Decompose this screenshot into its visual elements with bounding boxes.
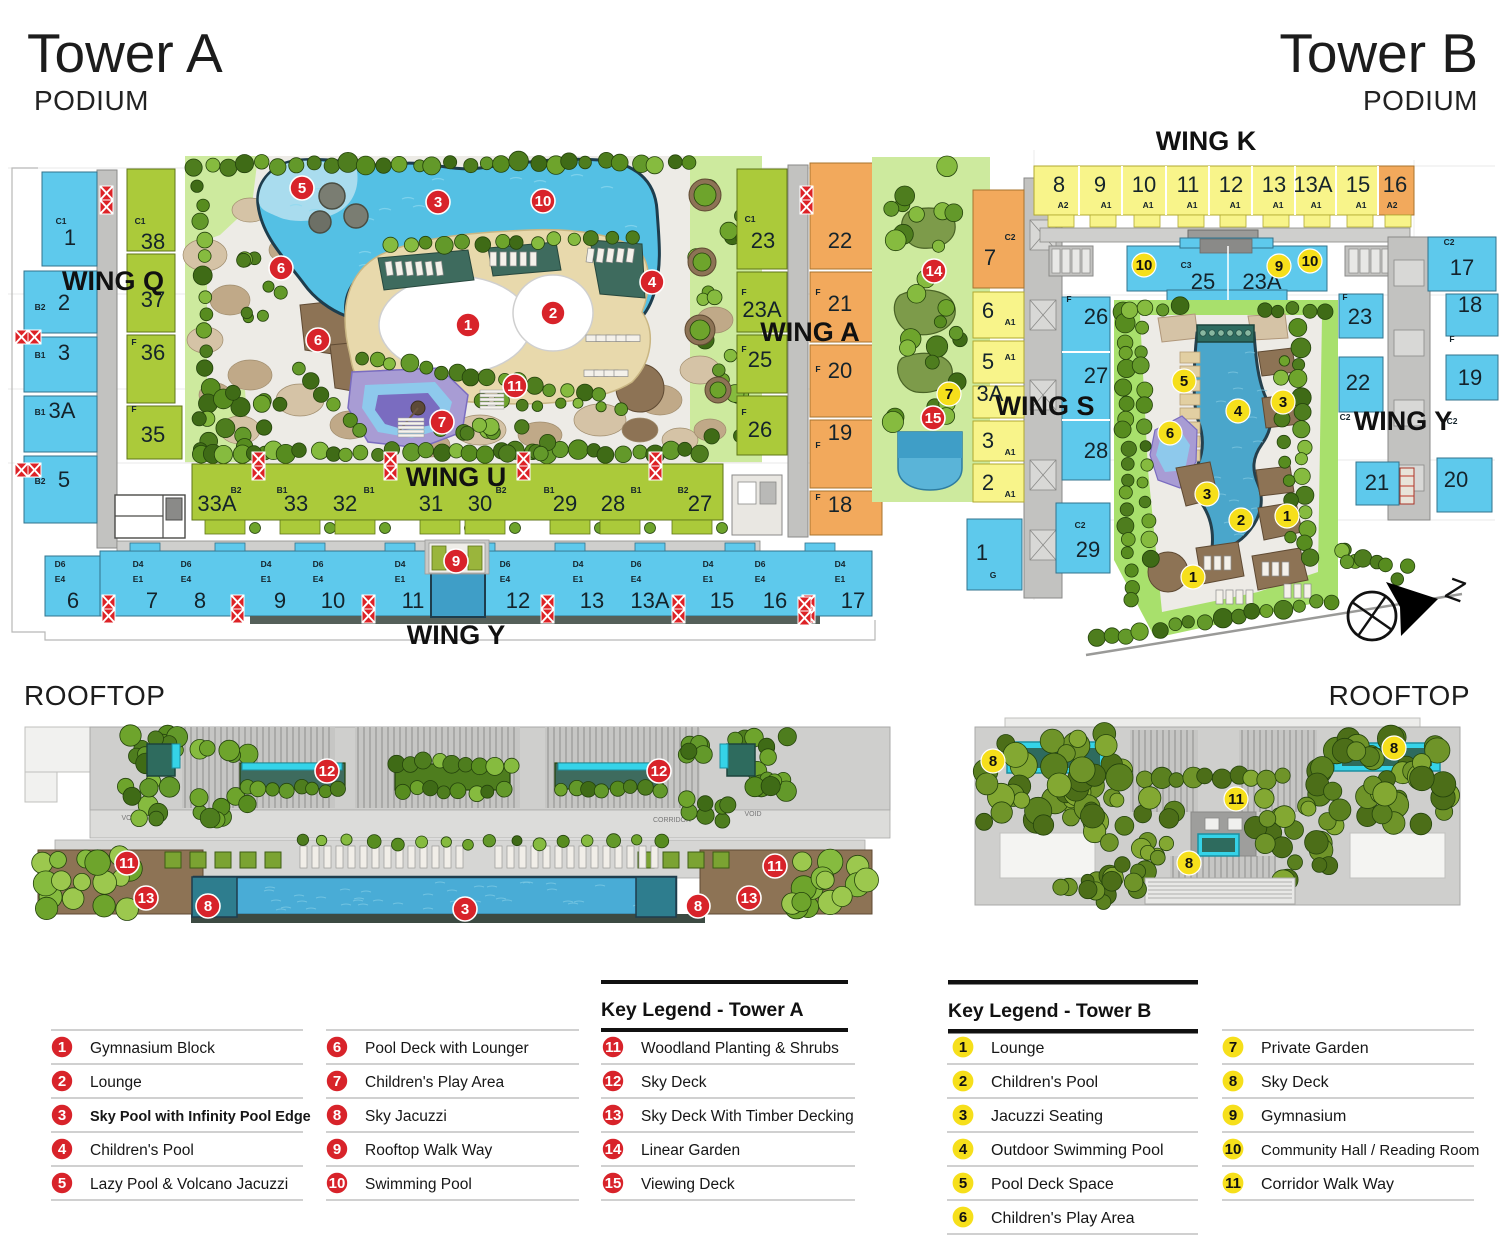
svg-text:WING Y: WING Y <box>407 620 506 650</box>
svg-text:8: 8 <box>1390 740 1398 757</box>
svg-text:D6: D6 <box>313 559 324 569</box>
svg-text:12: 12 <box>651 763 668 780</box>
svg-text:G: G <box>990 570 997 580</box>
svg-text:8: 8 <box>333 1107 341 1124</box>
svg-text:7: 7 <box>333 1073 341 1090</box>
svg-text:C1: C1 <box>135 216 146 226</box>
svg-text:E1: E1 <box>573 574 584 584</box>
svg-text:19: 19 <box>828 420 852 445</box>
svg-text:13: 13 <box>741 890 758 907</box>
svg-text:8: 8 <box>989 753 997 770</box>
svg-text:A1: A1 <box>1005 317 1016 327</box>
svg-text:38: 38 <box>141 229 165 254</box>
svg-text:3: 3 <box>461 901 469 918</box>
svg-text:28: 28 <box>601 491 625 516</box>
svg-text:11: 11 <box>402 588 425 613</box>
svg-text:11: 11 <box>605 1039 621 1056</box>
svg-text:Children's Play Area: Children's Play Area <box>991 1210 1135 1227</box>
svg-text:7: 7 <box>1229 1039 1237 1056</box>
svg-text:22: 22 <box>828 228 852 253</box>
svg-text:8: 8 <box>204 898 212 915</box>
svg-text:Tower B: Tower B <box>1279 22 1478 84</box>
svg-text:2: 2 <box>959 1073 967 1090</box>
svg-text:F: F <box>815 440 820 450</box>
svg-text:26: 26 <box>748 417 772 442</box>
svg-text:A1: A1 <box>1230 200 1241 210</box>
svg-text:Children's Pool: Children's Pool <box>90 1142 194 1159</box>
svg-text:F: F <box>1066 294 1071 304</box>
svg-text:F: F <box>1342 292 1347 302</box>
svg-text:Children's Play Area: Children's Play Area <box>365 1074 504 1091</box>
svg-text:9: 9 <box>452 553 460 570</box>
svg-text:6: 6 <box>277 260 285 277</box>
svg-text:B1: B1 <box>35 407 46 417</box>
svg-text:F: F <box>741 407 746 417</box>
svg-text:6: 6 <box>959 1209 967 1226</box>
svg-text:A1: A1 <box>1005 447 1016 457</box>
svg-text:8: 8 <box>1053 172 1065 197</box>
svg-text:10: 10 <box>1136 257 1153 274</box>
svg-text:Pool Deck with Lounger: Pool Deck with Lounger <box>365 1040 529 1057</box>
svg-text:Key Legend - Tower A: Key Legend - Tower A <box>601 999 804 1021</box>
svg-text:D4: D4 <box>573 559 584 569</box>
svg-text:11: 11 <box>1228 791 1244 808</box>
svg-text:1: 1 <box>58 1039 66 1056</box>
svg-text:21: 21 <box>828 291 852 316</box>
svg-text:28: 28 <box>1084 438 1108 463</box>
svg-text:Outdoor Swimming Pool: Outdoor Swimming Pool <box>991 1142 1164 1159</box>
svg-text:6: 6 <box>1166 425 1174 442</box>
svg-text:F: F <box>815 364 820 374</box>
svg-text:4: 4 <box>58 1141 67 1158</box>
svg-text:B1: B1 <box>544 485 555 495</box>
svg-text:C3: C3 <box>1181 260 1192 270</box>
svg-text:Lazy Pool & Volcano Jacuzzi: Lazy Pool & Volcano Jacuzzi <box>90 1176 288 1193</box>
svg-text:E4: E4 <box>55 574 66 584</box>
svg-text:27: 27 <box>688 491 712 516</box>
svg-text:9: 9 <box>333 1141 341 1158</box>
svg-text:26: 26 <box>1084 304 1108 329</box>
svg-text:5: 5 <box>1180 373 1188 390</box>
svg-text:A1: A1 <box>1005 352 1016 362</box>
svg-text:Corridor Walk Way: Corridor Walk Way <box>1261 1176 1394 1193</box>
svg-text:Sky Deck: Sky Deck <box>641 1074 707 1091</box>
svg-text:35: 35 <box>141 422 165 447</box>
svg-text:F: F <box>741 344 746 354</box>
svg-text:Pool Deck Space: Pool Deck Space <box>991 1176 1114 1193</box>
svg-text:1: 1 <box>64 225 76 250</box>
svg-text:15: 15 <box>605 1175 622 1192</box>
svg-text:23: 23 <box>751 228 775 253</box>
svg-text:E4: E4 <box>313 574 324 584</box>
svg-text:2: 2 <box>58 1073 66 1090</box>
svg-text:7: 7 <box>984 245 996 270</box>
svg-text:ROOFTOP: ROOFTOP <box>24 680 165 711</box>
svg-text:2: 2 <box>982 470 994 495</box>
svg-text:7: 7 <box>945 386 953 403</box>
svg-text:10: 10 <box>321 588 345 613</box>
svg-text:Viewing Deck: Viewing Deck <box>641 1176 735 1193</box>
svg-text:13A: 13A <box>630 588 669 613</box>
svg-text:WING A: WING A <box>760 317 859 347</box>
svg-text:A1: A1 <box>1273 200 1284 210</box>
svg-text:16: 16 <box>763 588 787 613</box>
svg-text:D6: D6 <box>181 559 192 569</box>
svg-text:3A: 3A <box>49 398 76 423</box>
svg-text:Key Legend - Tower B: Key Legend - Tower B <box>948 1000 1151 1022</box>
svg-text:10: 10 <box>535 193 552 210</box>
svg-text:3: 3 <box>434 194 442 211</box>
svg-text:Children's Pool: Children's Pool <box>991 1074 1098 1091</box>
svg-text:11: 11 <box>507 378 523 395</box>
svg-text:D4: D4 <box>133 559 144 569</box>
svg-text:6: 6 <box>314 332 322 349</box>
svg-text:F: F <box>741 287 746 297</box>
svg-text:Private Garden: Private Garden <box>1261 1040 1369 1057</box>
svg-text:B1: B1 <box>631 485 642 495</box>
svg-text:7: 7 <box>438 414 446 431</box>
svg-text:E4: E4 <box>631 574 642 584</box>
svg-text:Linear Garden: Linear Garden <box>641 1142 740 1159</box>
svg-text:4: 4 <box>959 1141 968 1158</box>
svg-text:5: 5 <box>58 467 70 492</box>
svg-text:10: 10 <box>1132 172 1156 197</box>
svg-text:A1: A1 <box>1356 200 1367 210</box>
svg-text:Lounge: Lounge <box>991 1040 1044 1057</box>
svg-text:D6: D6 <box>755 559 766 569</box>
svg-text:B1: B1 <box>35 350 46 360</box>
svg-text:20: 20 <box>1444 467 1468 492</box>
svg-text:9: 9 <box>1275 258 1283 275</box>
svg-text:36: 36 <box>141 340 165 365</box>
svg-text:Tower A: Tower A <box>27 22 223 84</box>
svg-text:Community Hall / Reading Room: Community Hall / Reading Room <box>1261 1142 1479 1159</box>
svg-text:13A: 13A <box>1293 172 1332 197</box>
svg-text:C2: C2 <box>1005 232 1016 242</box>
svg-text:E4: E4 <box>755 574 766 584</box>
svg-text:10: 10 <box>329 1175 346 1192</box>
svg-text:9: 9 <box>1229 1107 1237 1124</box>
svg-text:VOID: VOID <box>744 811 761 818</box>
svg-text:C2: C2 <box>1075 520 1086 530</box>
svg-text:Swimming Pool: Swimming Pool <box>365 1176 472 1193</box>
svg-text:PODIUM: PODIUM <box>1363 85 1478 116</box>
svg-text:D4: D4 <box>261 559 272 569</box>
svg-text:F: F <box>815 287 820 297</box>
svg-text:WING S: WING S <box>996 391 1095 421</box>
svg-text:C1: C1 <box>745 214 756 224</box>
svg-text:11: 11 <box>1177 172 1200 197</box>
svg-text:E1: E1 <box>703 574 714 584</box>
svg-text:A1: A1 <box>1187 200 1198 210</box>
svg-text:E4: E4 <box>181 574 192 584</box>
svg-text:Woodland Planting & Shrubs: Woodland Planting & Shrubs <box>641 1040 839 1057</box>
svg-text:E4: E4 <box>500 574 511 584</box>
svg-text:18: 18 <box>828 492 852 517</box>
svg-text:E1: E1 <box>261 574 272 584</box>
svg-text:11: 11 <box>767 858 783 875</box>
svg-text:Gymnasium Block: Gymnasium Block <box>90 1040 215 1057</box>
svg-text:19: 19 <box>1458 365 1482 390</box>
svg-text:1: 1 <box>959 1039 967 1056</box>
svg-text:D4: D4 <box>395 559 406 569</box>
svg-text:9: 9 <box>274 588 286 613</box>
svg-text:WING Y: WING Y <box>1354 406 1453 436</box>
svg-text:8: 8 <box>194 588 206 613</box>
svg-text:B2: B2 <box>35 302 46 312</box>
svg-text:E1: E1 <box>835 574 846 584</box>
svg-text:15: 15 <box>925 410 942 427</box>
svg-text:Sky Deck: Sky Deck <box>1261 1074 1330 1091</box>
svg-text:22: 22 <box>1346 370 1370 395</box>
svg-text:1: 1 <box>976 540 988 565</box>
svg-text:D4: D4 <box>703 559 714 569</box>
svg-text:18: 18 <box>1458 292 1482 317</box>
svg-text:F: F <box>815 492 820 502</box>
svg-text:17: 17 <box>1450 255 1474 280</box>
svg-text:12: 12 <box>1219 172 1243 197</box>
svg-text:13: 13 <box>138 890 155 907</box>
svg-text:4: 4 <box>1234 403 1243 420</box>
svg-text:B1: B1 <box>277 485 288 495</box>
svg-text:13: 13 <box>605 1107 622 1124</box>
svg-text:D6: D6 <box>631 559 642 569</box>
svg-text:3: 3 <box>58 340 70 365</box>
svg-text:ROOFTOP: ROOFTOP <box>1329 680 1470 711</box>
svg-text:WING Q: WING Q <box>62 266 164 296</box>
svg-text:17: 17 <box>841 588 865 613</box>
svg-text:WING U: WING U <box>406 462 507 492</box>
svg-text:WING K: WING K <box>1156 126 1257 156</box>
svg-text:1: 1 <box>1283 508 1291 525</box>
svg-text:31: 31 <box>419 491 443 516</box>
svg-text:D6: D6 <box>500 559 511 569</box>
svg-text:11: 11 <box>1225 1175 1241 1192</box>
svg-text:D6: D6 <box>55 559 66 569</box>
svg-text:29: 29 <box>553 491 577 516</box>
svg-text:10: 10 <box>1302 253 1319 270</box>
svg-text:C2: C2 <box>1340 412 1351 422</box>
svg-text:A2: A2 <box>1387 200 1398 210</box>
svg-text:F: F <box>131 337 136 347</box>
svg-text:Sky Deck With Timber Decking: Sky Deck With Timber Decking <box>641 1108 854 1125</box>
svg-text:E1: E1 <box>133 574 144 584</box>
svg-text:15: 15 <box>710 588 734 613</box>
svg-text:PODIUM: PODIUM <box>34 85 149 116</box>
svg-text:3: 3 <box>1279 394 1287 411</box>
svg-text:5: 5 <box>959 1175 967 1192</box>
svg-text:9: 9 <box>1094 172 1106 197</box>
svg-text:20: 20 <box>828 358 852 383</box>
svg-text:14: 14 <box>926 263 943 280</box>
svg-text:C2: C2 <box>1444 237 1455 247</box>
svg-text:8: 8 <box>694 898 702 915</box>
svg-text:A1: A1 <box>1143 200 1154 210</box>
svg-text:7: 7 <box>146 588 158 613</box>
svg-text:6: 6 <box>982 298 994 323</box>
svg-text:12: 12 <box>506 588 530 613</box>
svg-text:2: 2 <box>1237 512 1245 529</box>
svg-text:25: 25 <box>748 347 772 372</box>
svg-text:A1: A1 <box>1005 489 1016 499</box>
svg-text:Sky Pool with Infinity Pool Ed: Sky Pool with Infinity Pool Edge <box>90 1109 311 1125</box>
svg-text:A2: A2 <box>1058 200 1069 210</box>
svg-text:10: 10 <box>1225 1141 1242 1158</box>
svg-text:2: 2 <box>549 305 557 322</box>
svg-text:A1: A1 <box>1101 200 1112 210</box>
svg-text:F: F <box>131 404 136 414</box>
svg-text:27: 27 <box>1084 363 1108 388</box>
svg-text:E1: E1 <box>395 574 406 584</box>
svg-text:B2: B2 <box>678 485 689 495</box>
svg-text:3: 3 <box>1203 486 1211 503</box>
svg-text:5: 5 <box>982 349 994 374</box>
svg-text:12: 12 <box>605 1073 622 1090</box>
svg-text:21: 21 <box>1365 470 1389 495</box>
svg-text:30: 30 <box>468 491 492 516</box>
svg-text:25: 25 <box>1191 269 1215 294</box>
svg-text:Jacuzzi Seating: Jacuzzi Seating <box>991 1108 1103 1125</box>
svg-text:C1: C1 <box>56 216 67 226</box>
svg-text:D4: D4 <box>835 559 846 569</box>
svg-text:32: 32 <box>333 491 357 516</box>
svg-text:14: 14 <box>605 1141 622 1158</box>
svg-text:5: 5 <box>298 180 306 197</box>
svg-text:1: 1 <box>464 317 472 334</box>
svg-text:12: 12 <box>319 763 336 780</box>
svg-text:A1: A1 <box>1311 200 1322 210</box>
svg-text:3: 3 <box>959 1107 967 1124</box>
svg-text:4: 4 <box>648 274 657 291</box>
svg-text:3: 3 <box>982 428 994 453</box>
svg-text:F: F <box>1449 334 1454 344</box>
svg-text:13: 13 <box>1262 172 1286 197</box>
svg-text:16: 16 <box>1383 172 1407 197</box>
svg-text:3: 3 <box>58 1107 66 1124</box>
svg-text:B1: B1 <box>364 485 375 495</box>
svg-text:B2: B2 <box>231 485 242 495</box>
svg-text:23: 23 <box>1348 304 1372 329</box>
svg-text:Lounge: Lounge <box>90 1074 142 1091</box>
svg-text:1: 1 <box>1189 569 1197 586</box>
svg-text:Rooftop Walk Way: Rooftop Walk Way <box>365 1142 492 1159</box>
svg-text:6: 6 <box>333 1039 341 1056</box>
svg-text:8: 8 <box>1229 1073 1237 1090</box>
svg-text:8: 8 <box>1185 855 1193 872</box>
svg-text:13: 13 <box>580 588 604 613</box>
svg-text:5: 5 <box>58 1175 66 1192</box>
svg-text:11: 11 <box>119 855 135 872</box>
svg-text:29: 29 <box>1076 537 1100 562</box>
svg-text:15: 15 <box>1346 172 1370 197</box>
svg-text:6: 6 <box>67 588 79 613</box>
svg-text:Gymnasium: Gymnasium <box>1261 1108 1346 1125</box>
svg-text:Sky Jacuzzi: Sky Jacuzzi <box>365 1108 447 1125</box>
